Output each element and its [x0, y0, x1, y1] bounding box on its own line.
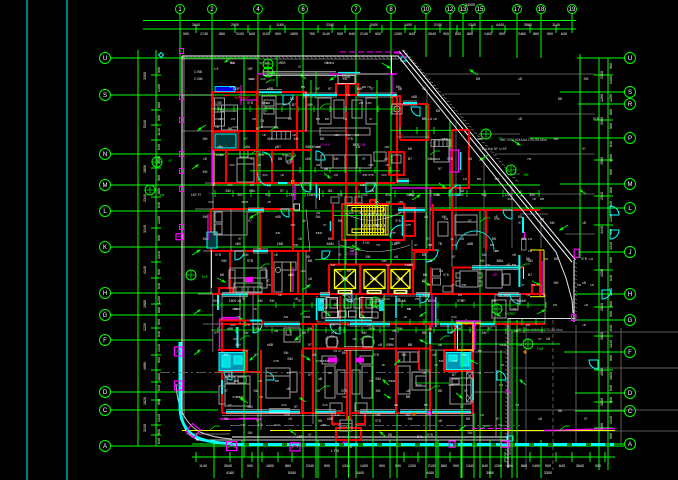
- svg-text:900: 900: [609, 355, 613, 361]
- svg-text:7M: 7M: [260, 119, 265, 123]
- svg-text:640: 640: [157, 144, 161, 150]
- svg-text:B7: B7: [228, 373, 232, 377]
- svg-text:1M: 1M: [528, 249, 533, 253]
- svg-text:640: 640: [561, 32, 567, 36]
- svg-text:B7u: B7u: [417, 435, 423, 439]
- svg-text:97B: 97B: [341, 389, 347, 393]
- svg-text:BM: BM: [203, 170, 208, 174]
- svg-text:BBM: BBM: [342, 277, 349, 281]
- svg-text:BBA: BBA: [497, 259, 505, 263]
- svg-text:uB: uB: [308, 277, 312, 281]
- svg-text:G: G: [628, 318, 633, 324]
- svg-text:BB: BB: [466, 417, 470, 421]
- svg-text:2M: 2M: [233, 337, 238, 341]
- svg-text:uB: uB: [406, 389, 410, 393]
- svg-text:97: 97: [308, 433, 312, 437]
- svg-text:1980: 1980: [143, 300, 147, 308]
- svg-text:900: 900: [545, 464, 551, 468]
- svg-text:BB: BB: [275, 379, 279, 383]
- svg-text:97: 97: [450, 331, 454, 335]
- svg-text:1 HPBP: 1 HPBP: [504, 312, 515, 316]
- svg-text:640: 640: [260, 77, 265, 81]
- svg-text:uB: uB: [358, 211, 362, 215]
- svg-text:900: 900: [275, 32, 281, 36]
- svg-text:97: 97: [393, 93, 397, 97]
- svg-text:BM: BM: [524, 173, 529, 177]
- svg-text:BBM: BBM: [386, 343, 394, 347]
- svg-text:uB: uB: [396, 297, 400, 301]
- svg-text:1340: 1340: [468, 23, 476, 27]
- svg-text:1340: 1340: [466, 464, 474, 468]
- svg-text:C BM: C BM: [214, 107, 222, 111]
- svg-text:2400: 2400: [609, 76, 613, 84]
- svg-text:900: 900: [230, 323, 235, 327]
- svg-text:uB: uB: [352, 337, 356, 341]
- svg-text:97B: 97B: [354, 231, 360, 235]
- svg-text:BM: BM: [408, 417, 413, 421]
- svg-text:xB: xB: [392, 329, 396, 333]
- svg-text:97: 97: [338, 349, 342, 353]
- svg-text:7B: 7B: [438, 242, 443, 246]
- svg-text:xB: xB: [582, 221, 586, 225]
- svg-text:uB: uB: [434, 363, 438, 367]
- svg-text:BM: BM: [375, 377, 380, 381]
- svg-text:2M: 2M: [553, 303, 558, 307]
- svg-text:1BF: 1BF: [247, 67, 253, 71]
- svg-text:BM: BM: [462, 283, 467, 287]
- svg-text:900: 900: [375, 32, 381, 36]
- svg-text:BM: BM: [584, 77, 589, 81]
- svg-text:BB: BB: [490, 243, 494, 247]
- svg-text:uB: uB: [582, 281, 586, 285]
- svg-text:BM: BM: [254, 389, 259, 393]
- svg-text:97B: 97B: [427, 433, 433, 437]
- svg-text:BB: BB: [408, 147, 412, 151]
- svg-text:2340: 2340: [143, 194, 147, 202]
- svg-text:12: 12: [447, 7, 454, 13]
- svg-text:7M u.0 st BF ru BF: 7M u.0 st BF ru BF: [480, 147, 507, 151]
- svg-text:640: 640: [609, 325, 613, 331]
- svg-text:2640: 2640: [224, 464, 232, 468]
- svg-text:M: M: [303, 219, 306, 223]
- svg-text:BM: BM: [396, 85, 401, 89]
- svg-text:900: 900: [274, 423, 279, 427]
- svg-text:900: 900: [499, 32, 505, 36]
- svg-text:xB: xB: [450, 237, 454, 241]
- svg-text:BM: BM: [307, 103, 312, 107]
- svg-text:uB: uB: [267, 200, 271, 204]
- svg-text:5340: 5340: [288, 471, 296, 475]
- svg-text:BM: BM: [439, 359, 444, 363]
- svg-text:BB: BB: [407, 307, 411, 311]
- svg-text:97: 97: [298, 299, 302, 303]
- svg-text:BM: BM: [390, 337, 395, 341]
- svg-text:860: 860: [285, 464, 291, 468]
- svg-text:1M: 1M: [463, 177, 468, 181]
- svg-text:900: 900: [416, 383, 421, 387]
- svg-text:640: 640: [336, 269, 341, 273]
- svg-text:97B: 97B: [347, 299, 353, 303]
- svg-text:uB: uB: [468, 157, 472, 161]
- svg-text:U: U: [628, 56, 632, 62]
- svg-text:xB: xB: [375, 200, 379, 204]
- svg-text:O H9: O H9: [320, 142, 330, 147]
- svg-text:640: 640: [157, 331, 161, 337]
- svg-text:1M: 1M: [452, 243, 457, 247]
- svg-text:2640: 2640: [192, 23, 200, 27]
- svg-text:2M: 2M: [415, 297, 420, 301]
- svg-text:640: 640: [157, 202, 161, 208]
- svg-text:xB: xB: [253, 307, 257, 311]
- svg-text:3300: 3300: [544, 471, 552, 475]
- svg-text:1BF: 1BF: [511, 307, 517, 311]
- svg-text:13: 13: [460, 7, 467, 13]
- svg-text:860: 860: [609, 187, 613, 193]
- svg-text:BM: BM: [291, 223, 296, 227]
- svg-text:97: 97: [255, 249, 259, 253]
- svg-text:1340: 1340: [157, 414, 161, 422]
- svg-text:C: C: [103, 408, 108, 414]
- svg-text:1200: 1200: [157, 216, 161, 224]
- svg-text:7M: 7M: [477, 371, 482, 375]
- svg-text:C BM: C BM: [194, 77, 203, 81]
- svg-text:97: 97: [369, 117, 373, 121]
- svg-text:5340: 5340: [143, 120, 147, 128]
- svg-text:xB: xB: [312, 353, 316, 357]
- svg-text:7M: 7M: [367, 85, 372, 89]
- svg-text:uB: uB: [257, 163, 261, 167]
- svg-text:uBB: uBB: [411, 95, 417, 99]
- svg-text:2640: 2640: [600, 303, 604, 311]
- svg-text:BB: BB: [518, 215, 522, 219]
- svg-text:97: 97: [468, 219, 472, 223]
- svg-text:97: 97: [328, 87, 332, 91]
- svg-text:97: 97: [280, 189, 284, 193]
- svg-text:1340: 1340: [609, 242, 613, 250]
- svg-text:S: S: [628, 90, 632, 96]
- svg-text:97: 97: [438, 167, 442, 171]
- svg-text:BM: BM: [363, 173, 368, 177]
- svg-text:xB: xB: [522, 299, 526, 303]
- svg-text:15: 15: [477, 7, 484, 13]
- svg-text:1200: 1200: [360, 193, 367, 197]
- svg-text:640: 640: [240, 423, 245, 427]
- svg-text:G: G: [103, 313, 108, 319]
- svg-text:D: D: [103, 390, 108, 396]
- svg-text:BBM: BBM: [371, 277, 378, 281]
- svg-text:1800: 1800: [290, 32, 298, 36]
- svg-text:BB: BB: [540, 197, 544, 201]
- svg-text:BB: BB: [526, 257, 530, 261]
- svg-text:2M: 2M: [350, 249, 355, 253]
- svg-text:BB: BB: [406, 395, 411, 399]
- svg-text:BB: BB: [290, 97, 294, 101]
- svg-text:uB: uB: [318, 377, 323, 381]
- svg-text:M: M: [628, 182, 633, 188]
- svg-text:BB: BB: [278, 157, 282, 161]
- svg-text:97: 97: [254, 353, 258, 357]
- svg-text:900: 900: [247, 464, 253, 468]
- svg-text:uB: uB: [292, 133, 296, 137]
- svg-text:7M: 7M: [486, 263, 491, 267]
- svg-text:1400: 1400: [404, 23, 412, 27]
- svg-text:3400: 3400: [356, 471, 364, 475]
- svg-text:1340: 1340: [609, 340, 613, 348]
- svg-text:900: 900: [337, 32, 343, 36]
- svg-text:1340: 1340: [157, 251, 161, 259]
- svg-text:1M: 1M: [386, 200, 391, 204]
- svg-text:uB: uB: [422, 371, 426, 375]
- svg-text:1140: 1140: [552, 23, 560, 27]
- svg-text:1M: 1M: [360, 183, 365, 187]
- svg-text:900: 900: [265, 193, 271, 197]
- svg-text:1BF: 1BF: [315, 145, 321, 149]
- svg-text:BB: BB: [478, 349, 482, 353]
- svg-text:97B: 97B: [331, 331, 337, 335]
- svg-text:2740: 2740: [362, 241, 369, 245]
- svg-text:LP: LP: [168, 159, 172, 163]
- svg-text:BM: BM: [294, 137, 299, 141]
- svg-text:1140: 1140: [199, 464, 207, 468]
- svg-text:1340: 1340: [456, 193, 463, 197]
- svg-text:BM: BM: [334, 157, 339, 161]
- svg-text:97: 97: [323, 223, 327, 227]
- svg-text:xB: xB: [500, 363, 504, 367]
- svg-text:L T[B: L T[B: [331, 449, 340, 453]
- svg-text:900: 900: [157, 357, 161, 363]
- svg-text:xB: xB: [348, 445, 352, 449]
- svg-text:3960: 3960: [524, 23, 532, 27]
- svg-text:BB: BB: [558, 409, 562, 413]
- svg-text:BM: BM: [284, 351, 289, 355]
- svg-text:2640: 2640: [212, 299, 219, 303]
- svg-text:xB: xB: [385, 163, 389, 167]
- svg-text:uB: uB: [220, 153, 224, 157]
- svg-text:640: 640: [455, 32, 461, 36]
- svg-text:1800: 1800: [600, 398, 604, 406]
- svg-text:97: 97: [228, 403, 232, 407]
- svg-text:BB: BB: [423, 273, 428, 277]
- svg-text:1400: 1400: [532, 464, 540, 468]
- svg-text:uB: uB: [432, 353, 436, 357]
- svg-text:BM: BM: [270, 299, 275, 303]
- svg-text:uB: uB: [394, 255, 398, 259]
- svg-text:1100: 1100: [262, 32, 270, 36]
- svg-text:BB: BB: [308, 259, 313, 263]
- svg-text:900: 900: [157, 399, 161, 405]
- svg-text:4.5: 4.5: [214, 67, 219, 71]
- svg-text:BM: BM: [203, 215, 208, 219]
- svg-text:xB: xB: [480, 413, 484, 417]
- svg-text:1M: 1M: [589, 257, 594, 261]
- svg-text:BM: BM: [316, 215, 321, 219]
- svg-text:uB: uB: [514, 329, 518, 333]
- svg-text:B7: B7: [452, 373, 456, 377]
- svg-text:9BF BSA AMAAA CRUSt-Mnn: 9BF BSA AMAAA CRUSt-Mnn: [500, 138, 547, 142]
- svg-text:1BF: 1BF: [297, 435, 303, 439]
- svg-text:uBB: uBB: [467, 242, 474, 246]
- svg-text:xB: xB: [274, 253, 278, 257]
- svg-text:2340: 2340: [306, 464, 314, 468]
- svg-text:4180: 4180: [226, 471, 234, 475]
- svg-text:BB: BB: [325, 117, 329, 121]
- svg-text:3960: 3960: [486, 471, 494, 475]
- svg-text:900: 900: [609, 63, 613, 69]
- svg-text:BM: BM: [376, 299, 381, 303]
- svg-text:BM: BM: [203, 237, 208, 241]
- svg-text:2M: 2M: [367, 323, 372, 327]
- svg-text:4440: 4440: [496, 23, 504, 27]
- svg-text:BM: BM: [225, 189, 230, 193]
- svg-text:640: 640: [157, 438, 161, 444]
- svg-text:B7: B7: [528, 273, 532, 277]
- svg-text:BM: BM: [244, 253, 249, 257]
- svg-text:97: 97: [259, 61, 263, 65]
- svg-text:7M: 7M: [369, 379, 374, 383]
- svg-text:3M: 3M: [328, 189, 333, 193]
- svg-text:BB: BB: [422, 253, 426, 257]
- svg-text:97: 97: [298, 65, 302, 69]
- svg-text:1800: 1800: [609, 372, 613, 380]
- svg-text:BBM: BBM: [397, 277, 404, 281]
- svg-text:2400: 2400: [157, 84, 161, 92]
- svg-text:1BF: 1BF: [398, 200, 404, 204]
- svg-text:4680: 4680: [143, 362, 147, 370]
- svg-text:7M: 7M: [259, 395, 264, 399]
- svg-text:uB: uB: [258, 379, 262, 383]
- svg-text:900: 900: [609, 311, 613, 317]
- svg-text:97: 97: [521, 283, 525, 287]
- svg-text:97: 97: [242, 297, 246, 301]
- svg-text:1M: 1M: [528, 237, 533, 241]
- svg-text:640: 640: [322, 403, 327, 407]
- svg-text:900: 900: [547, 32, 553, 36]
- svg-text:xB: xB: [403, 315, 407, 319]
- svg-text:1160: 1160: [276, 23, 284, 27]
- svg-text:97B: 97B: [405, 223, 411, 227]
- svg-text:640: 640: [384, 297, 389, 301]
- svg-text:F: F: [628, 350, 632, 356]
- svg-text:BB: BB: [422, 279, 426, 283]
- svg-text:97: 97: [452, 255, 456, 259]
- svg-text:uB: uB: [402, 299, 406, 303]
- svg-text:BB: BB: [462, 353, 466, 357]
- svg-text:2M: 2M: [231, 117, 236, 121]
- svg-text:640: 640: [157, 283, 161, 289]
- svg-text:uB: uB: [324, 167, 329, 171]
- svg-text:B7: B7: [408, 157, 412, 161]
- svg-text:BBM: BBM: [316, 231, 323, 235]
- svg-text:1260: 1260: [394, 32, 402, 36]
- svg-text:xB: xB: [506, 263, 510, 267]
- svg-text:17: 17: [514, 7, 521, 13]
- svg-text:97: 97: [244, 137, 248, 141]
- svg-text:xB: xB: [381, 363, 385, 367]
- svg-text:uB: uB: [433, 117, 437, 121]
- svg-text:BM: BM: [343, 77, 348, 81]
- svg-text:2340: 2340: [600, 192, 604, 200]
- svg-text:900: 900: [609, 257, 613, 263]
- svg-text:xB: xB: [518, 117, 522, 121]
- svg-text:BF: BF: [316, 87, 320, 91]
- svg-text:1M: 1M: [439, 269, 444, 273]
- svg-text:xB: xB: [218, 117, 222, 121]
- svg-text:BM: BM: [550, 221, 555, 225]
- svg-text:900: 900: [229, 163, 234, 167]
- svg-text:3300: 3300: [143, 72, 147, 80]
- svg-text:860: 860: [237, 193, 243, 197]
- svg-text:900: 900: [381, 173, 386, 177]
- svg-text:4440: 4440: [600, 226, 604, 234]
- svg-text:900: 900: [443, 32, 449, 36]
- svg-text:97: 97: [250, 157, 254, 161]
- svg-text:xB: xB: [532, 197, 536, 201]
- svg-text:uB: uB: [460, 237, 464, 241]
- svg-text:2100: 2100: [434, 23, 442, 27]
- svg-text:7M: 7M: [527, 157, 532, 161]
- svg-text:640: 640: [559, 464, 565, 468]
- svg-text:1200: 1200: [600, 94, 604, 102]
- svg-text:MBB: MBB: [279, 61, 286, 65]
- svg-text:97: 97: [347, 323, 351, 327]
- svg-text:900: 900: [609, 433, 613, 439]
- svg-text:xB: xB: [262, 133, 266, 137]
- svg-text:BM: BM: [554, 137, 559, 141]
- svg-text:97B: 97B: [247, 259, 254, 263]
- svg-text:1740: 1740: [200, 32, 208, 36]
- svg-text:1BF: 1BF: [368, 163, 374, 167]
- svg-text:uB: uB: [278, 293, 282, 297]
- svg-text:4080: 4080: [600, 368, 604, 376]
- svg-text:uB: uB: [493, 249, 497, 253]
- svg-text:BB: BB: [388, 433, 392, 437]
- svg-text:M: M: [103, 183, 108, 189]
- svg-text:BB: BB: [436, 109, 440, 113]
- svg-text:1M: 1M: [590, 283, 595, 287]
- svg-text:900: 900: [157, 175, 161, 181]
- svg-text:BM: BM: [495, 177, 500, 181]
- svg-text:C BB: C BB: [194, 70, 203, 74]
- svg-text:BB: BB: [476, 77, 480, 81]
- svg-text:1M: 1M: [444, 217, 449, 221]
- svg-text:uB: uB: [538, 417, 542, 421]
- svg-text:640: 640: [609, 385, 613, 391]
- svg-text:oBA: oBA: [244, 145, 251, 149]
- svg-text:7M: 7M: [531, 283, 536, 287]
- svg-text:xB: xB: [294, 297, 298, 301]
- svg-text:97: 97: [584, 417, 588, 421]
- svg-text:900: 900: [609, 169, 613, 175]
- svg-text:860: 860: [609, 301, 613, 307]
- svg-text:BB: BB: [408, 343, 413, 347]
- svg-text:97: 97: [462, 299, 466, 303]
- svg-text:97B: 97B: [347, 137, 353, 141]
- svg-text:4500: 4500: [600, 157, 604, 165]
- svg-text:900: 900: [324, 464, 330, 468]
- svg-text:BBM: BBM: [323, 359, 330, 363]
- svg-text:1620: 1620: [143, 397, 147, 405]
- svg-text:900: 900: [227, 183, 232, 187]
- svg-text:900: 900: [409, 193, 415, 197]
- svg-text:640: 640: [157, 385, 161, 391]
- svg-text:xB: xB: [203, 157, 207, 161]
- svg-text:2800: 2800: [143, 165, 147, 173]
- svg-text:BM: BM: [346, 93, 351, 97]
- svg-text:BM: BM: [287, 357, 292, 361]
- svg-text:A: A: [628, 442, 632, 448]
- svg-text:97B: 97B: [593, 117, 599, 121]
- svg-text:640: 640: [609, 275, 613, 281]
